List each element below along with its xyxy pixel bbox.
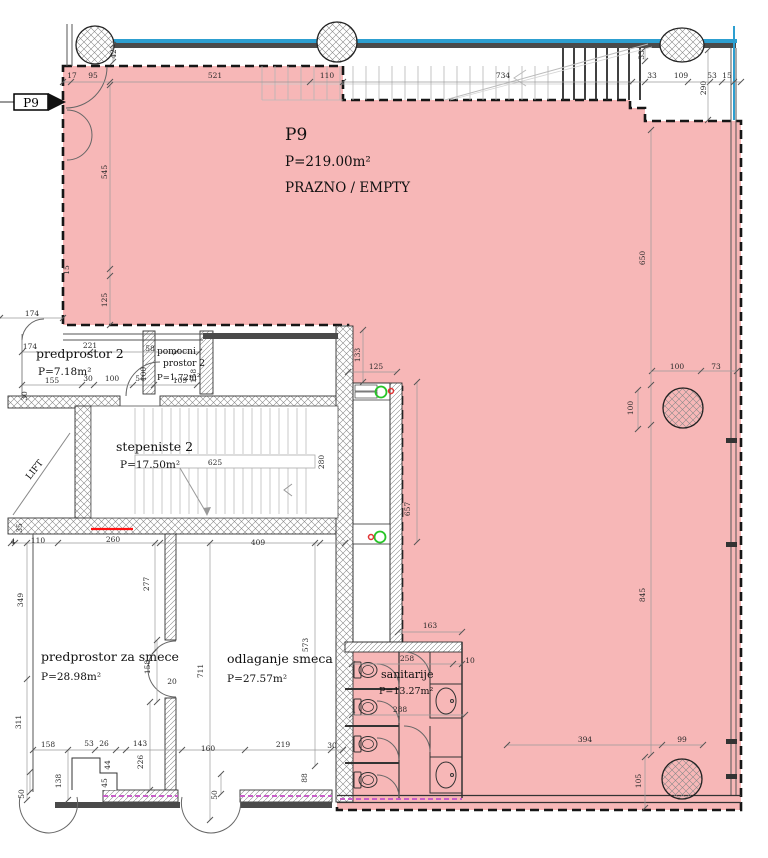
wall-segment	[345, 642, 462, 652]
dimension-label: 138	[54, 774, 63, 789]
dimension-label: 105	[634, 774, 643, 789]
column	[662, 759, 702, 799]
door-arc	[22, 319, 44, 340]
dimension-label: 10	[465, 656, 475, 665]
dimension-label: 42	[109, 49, 118, 59]
dimension-label: 33	[637, 50, 646, 60]
dimension-label: 33	[647, 71, 657, 80]
floor-plan: 1795521110734331095315423329054515125174…	[0, 0, 768, 858]
pomocni-area: P=1.72m²	[157, 373, 200, 383]
dimension-label: 158	[41, 740, 56, 749]
dimension-label: 99	[677, 735, 687, 744]
wall-segment	[165, 698, 176, 790]
stepeniste2-area: P=17.50m²	[120, 459, 180, 471]
smece-vestibule-area: P=28.98m²	[41, 671, 101, 683]
dimension-label: 88	[300, 773, 309, 783]
dimension-label: 100	[670, 362, 685, 371]
dimension-label: 845	[638, 588, 647, 603]
dimension-label: 657	[403, 502, 412, 517]
pomocni-name-l2: prostor 2	[163, 359, 205, 369]
dimension-label: 734	[496, 71, 511, 80]
dimension-label: 290	[699, 81, 708, 96]
wall-segment	[8, 518, 355, 534]
column	[660, 28, 704, 62]
sanitarije-area: P=13.27m²	[379, 686, 434, 697]
main-space-name: P9	[285, 125, 307, 145]
dimension-label: 277	[142, 577, 151, 592]
dimension-label: 349	[16, 593, 25, 608]
facade-accent-line	[108, 39, 737, 43]
wall-segment	[336, 326, 353, 802]
dimension-label: 280	[317, 455, 326, 470]
column	[663, 388, 703, 428]
dimension-label: 258	[400, 654, 415, 663]
dimension-label: 125	[369, 362, 384, 371]
dimension-label: 219	[276, 740, 291, 749]
predprostor2-name: predprostor 2	[36, 346, 124, 361]
odlaganje-area: P=27.57m²	[227, 673, 287, 685]
dimension-label: 73	[711, 362, 721, 371]
stair-treads-bold	[563, 48, 640, 100]
dimension-label: 45	[100, 778, 109, 788]
dimension-label: 625	[208, 458, 223, 467]
dimension-label: 53	[707, 71, 717, 80]
wall-segment	[75, 406, 91, 520]
dimension-label: 35	[15, 523, 24, 533]
odlaganje-name: odlaganje smeca	[227, 651, 333, 666]
exterior-door-arc	[19, 797, 49, 833]
dimension-label: 44	[103, 760, 112, 770]
dimension-label: 95	[88, 71, 98, 80]
unit-tag-label: P9	[23, 96, 39, 110]
dimension-label: 110	[31, 536, 46, 545]
lift-diagonal	[13, 433, 70, 515]
dimension-label: 125	[100, 293, 109, 308]
dimension-label: 160	[201, 744, 216, 753]
wall-segment	[165, 534, 176, 640]
dimension-label: 53	[84, 739, 94, 748]
main-space-status: PRAZNO / EMPTY	[285, 180, 411, 196]
dimension-label: 163	[423, 621, 438, 630]
dimension-label: 30	[327, 741, 337, 750]
dimension-label: 100	[626, 401, 635, 416]
dimension-label: 110	[320, 71, 335, 80]
dimension-label: 58	[145, 344, 155, 353]
dimension-label: 409	[251, 538, 266, 547]
pomocni-name-l1: pomocni	[157, 347, 196, 357]
dimension-label: 17	[67, 71, 77, 80]
dimension-label: 15	[62, 265, 71, 275]
dimension-label: 50	[210, 790, 219, 800]
wall-segment	[390, 383, 402, 642]
dimension-label: 394	[578, 735, 593, 744]
stepeniste2-name: stepeniste 2	[116, 439, 193, 454]
dimension-label: 50	[17, 789, 26, 799]
dimension-label: 20	[167, 677, 177, 686]
dimension-label: 54	[135, 374, 145, 383]
dimension-label: 109	[674, 71, 689, 80]
dimension-label: 573	[301, 638, 310, 653]
dimension-label: 15	[722, 71, 732, 80]
dimension-label: 521	[208, 71, 222, 80]
dimension-label: 26	[99, 739, 109, 748]
dimension-label: 288	[393, 705, 408, 714]
wall-segment	[240, 790, 332, 802]
dimension-label: 30	[20, 391, 29, 401]
main-space-area: P=219.00m²	[285, 154, 371, 170]
unit-tag: P9	[0, 93, 66, 111]
dimension-label: 174	[25, 309, 40, 318]
column	[317, 22, 357, 62]
dimension-label: 260	[106, 535, 121, 544]
floor-plan-svg: 1795521110734331095315423329054515125174…	[0, 0, 768, 858]
dimension-label: 650	[638, 251, 647, 266]
dimension-label: 143	[133, 739, 148, 748]
dimension-label: 711	[196, 664, 205, 678]
dimension-label: 545	[100, 165, 109, 180]
dimension-label: 133	[353, 348, 362, 363]
sanitarije-name: sanitarije	[381, 668, 433, 681]
dimension-label: 311	[14, 715, 23, 729]
predprostor2-area: P=7.18m²	[38, 366, 91, 378]
dimension-label: 4	[11, 537, 16, 546]
dimension-label: 226	[136, 755, 145, 770]
exterior-door-arc	[211, 797, 241, 833]
exterior-door-arc	[181, 797, 211, 833]
lift-label: LIFT	[24, 459, 45, 482]
smece-vestibule-name: predprostor za smece	[41, 649, 179, 664]
dimension-label: 100	[105, 374, 120, 383]
service-shaft	[353, 383, 394, 642]
